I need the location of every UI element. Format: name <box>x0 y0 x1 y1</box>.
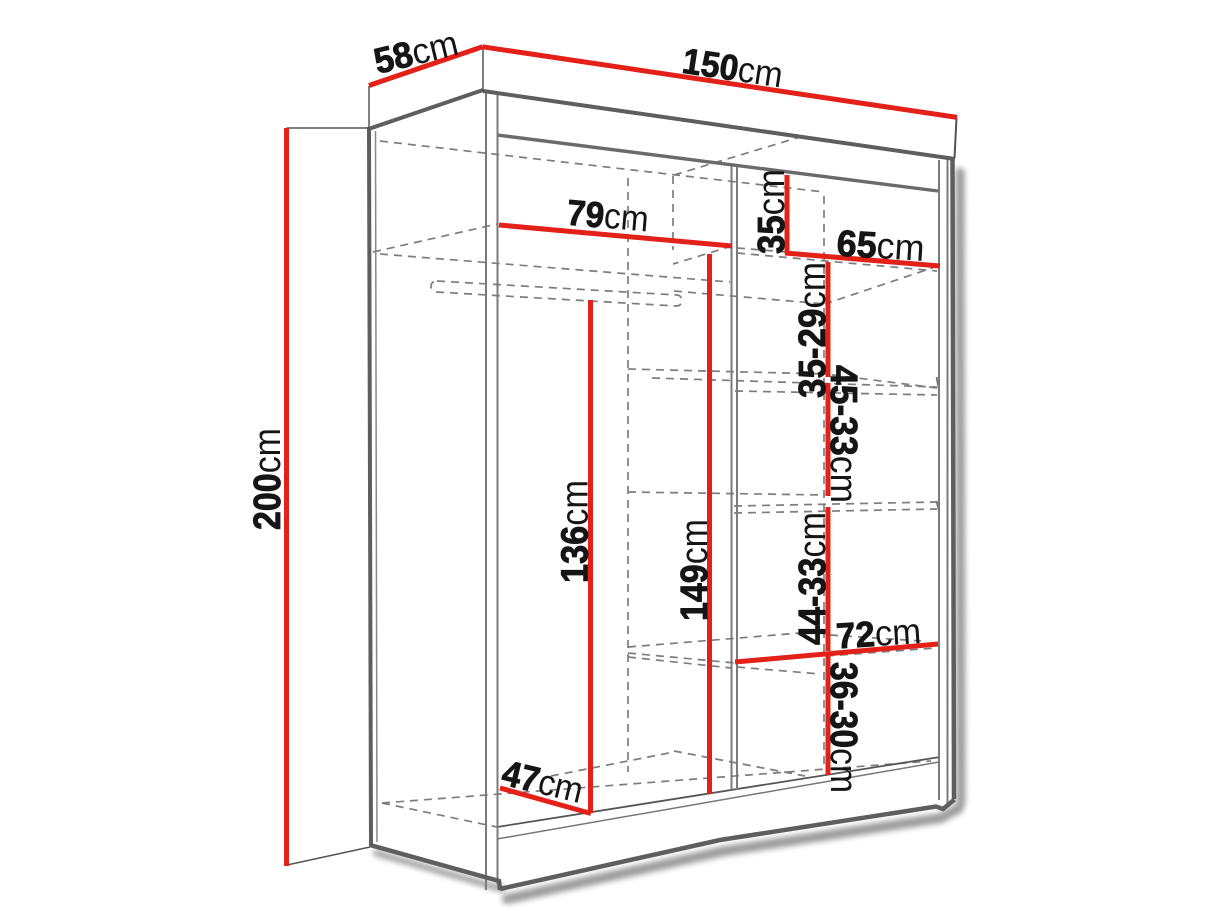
svg-text:58cm: 58cm <box>370 22 462 82</box>
svg-text:149cm: 149cm <box>674 519 716 621</box>
svg-text:35cm: 35cm <box>751 169 793 254</box>
svg-text:136cm: 136cm <box>555 480 597 583</box>
svg-text:65cm: 65cm <box>835 223 925 269</box>
svg-text:200cm: 200cm <box>247 428 289 530</box>
svg-text:72cm: 72cm <box>835 610 922 656</box>
svg-text:150cm: 150cm <box>680 40 786 96</box>
svg-text:47cm: 47cm <box>498 752 587 811</box>
svg-text:45-33cm: 45-33cm <box>822 365 864 503</box>
svg-text:44-33cm: 44-33cm <box>792 512 834 645</box>
svg-text:79cm: 79cm <box>565 192 650 240</box>
svg-text:36-30cm: 36-30cm <box>822 662 864 793</box>
